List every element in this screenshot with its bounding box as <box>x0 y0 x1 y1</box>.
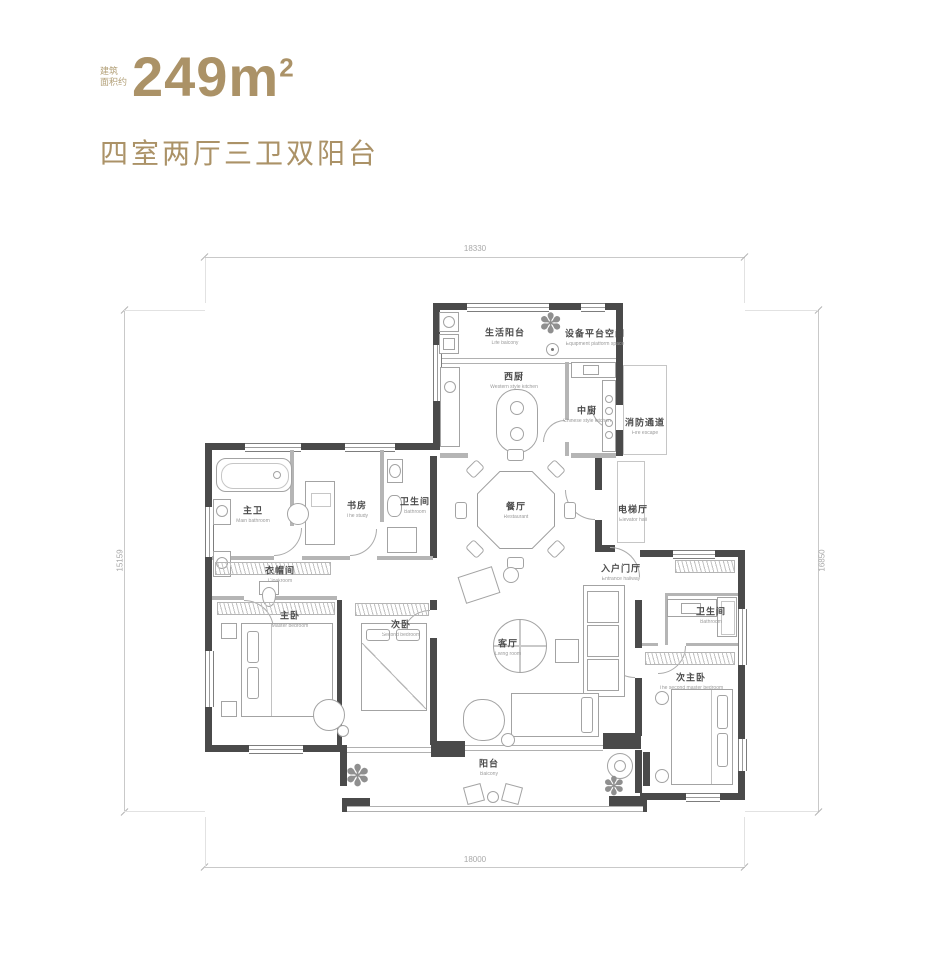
dining-chair <box>564 502 576 519</box>
window <box>205 651 214 707</box>
wall-segment <box>430 638 437 745</box>
room-name-cn: 客厅 <box>498 639 518 649</box>
pillow <box>247 631 259 663</box>
room-label-cloakroom: 衣帽间Cloakroom <box>263 561 297 586</box>
armchair <box>458 566 501 604</box>
area-value: 249m2 <box>132 44 295 109</box>
room-label-elevator-hall: 电梯厅Elevator hall <box>614 500 653 525</box>
shower <box>387 527 417 553</box>
bed-cover-line <box>362 643 426 709</box>
page-title: 四室两厅三卫双阳台 <box>100 132 379 172</box>
pillow <box>717 695 728 729</box>
dining-chair <box>465 459 485 479</box>
wall-segment <box>643 752 650 786</box>
dim-ext <box>745 310 818 311</box>
wall-segment <box>205 557 212 651</box>
wall-segment <box>640 793 686 800</box>
sofa-cushion <box>587 659 619 691</box>
wall-segment <box>395 443 440 450</box>
partition <box>571 453 616 458</box>
ottoman <box>337 725 349 737</box>
room-name-en: Balcony <box>480 772 498 777</box>
plant-icon: ✽ <box>345 759 370 794</box>
partition <box>275 596 337 600</box>
glass-door <box>347 747 431 753</box>
area-prefix-line2: 面积约 <box>100 77 127 88</box>
partition <box>665 593 738 596</box>
room-name-cn: 卫生间 <box>400 497 430 507</box>
floorplan: ✽ <box>205 303 745 815</box>
room-name-cn: 次主卧 <box>676 673 706 683</box>
window <box>345 443 395 452</box>
dim-right-value: 16850 <box>818 536 827 586</box>
window <box>673 550 715 559</box>
room-name-en: Cloakroom <box>268 579 292 584</box>
room-name-cn: 设备平台空间 <box>565 329 625 339</box>
sink-bowl <box>389 464 401 478</box>
desk-monitor <box>311 493 331 507</box>
side-table <box>503 567 519 583</box>
area-exponent: 2 <box>279 52 294 82</box>
room-label-master-bedroom: 主卧Master bedroom <box>265 606 316 631</box>
partition <box>686 643 738 646</box>
wall-segment <box>205 450 212 507</box>
dim-ext <box>205 258 206 303</box>
wall-segment <box>595 520 602 545</box>
room-name-cn: 主卫 <box>243 506 263 516</box>
room-name-cn: 衣帽间 <box>265 566 295 576</box>
wall-segment <box>430 600 437 610</box>
floorplan-page: { "header": { "area_label_line1": "建筑", … <box>0 0 940 965</box>
room-label-equipment-platform: 设备平台空间Equipment platform space <box>554 324 635 349</box>
wall-segment <box>616 430 623 456</box>
window <box>738 609 747 665</box>
ottoman <box>501 733 515 747</box>
wall-segment <box>605 303 623 310</box>
pillow <box>581 697 593 733</box>
wall-segment <box>720 793 745 800</box>
balcony-table <box>487 791 499 803</box>
room-name-cn: 阳台 <box>479 759 499 769</box>
area-number: 249m <box>132 45 279 108</box>
dim-line-top <box>205 257 745 258</box>
desk <box>305 481 335 545</box>
door-arc <box>274 528 302 556</box>
balcony-chair <box>501 783 523 805</box>
partition <box>212 596 244 600</box>
wardrobe <box>645 652 735 665</box>
partition <box>440 453 468 458</box>
window <box>738 739 747 771</box>
room-name-en: The second master bedroom <box>659 686 723 691</box>
island-hob <box>510 427 524 441</box>
balcony-railing <box>347 806 643 812</box>
room-name-en: Western style kitchen <box>490 385 538 390</box>
sink <box>444 381 456 393</box>
room-name-en: Entrance hallway <box>602 577 640 582</box>
room-label-second-master: 次主卧The second master bedroom <box>646 668 736 693</box>
pillow <box>717 733 728 767</box>
room-name-en: Life balcony <box>491 341 520 346</box>
dining-chair <box>546 539 566 559</box>
nightstand <box>221 623 237 639</box>
wall-segment <box>303 745 347 752</box>
sofa-cushion <box>587 591 619 623</box>
nightstand <box>655 691 669 705</box>
wall-segment <box>738 557 745 609</box>
stove-burner <box>605 431 613 439</box>
balcony-chair <box>463 783 485 805</box>
room-name-en: Bathroom <box>700 620 722 625</box>
sink <box>583 365 599 375</box>
room-label-living: 客厅Living room <box>490 634 526 659</box>
wall-segment <box>430 456 437 510</box>
room-label-bathroom-mid: 卫生间Bathroom <box>400 492 430 517</box>
dining-chair <box>465 539 485 559</box>
room-name-en: Main bathroom <box>236 519 270 524</box>
window <box>249 745 303 754</box>
nightstand <box>655 769 669 783</box>
bed-cover-line <box>711 690 712 784</box>
bathtub-drain <box>273 471 281 479</box>
wall-segment <box>635 678 642 736</box>
room-label-master-bath: 主卫Main bathroom <box>230 501 277 526</box>
door-arc <box>350 529 377 556</box>
window <box>467 303 549 312</box>
pillow <box>247 667 259 699</box>
glass-door <box>465 745 603 751</box>
dim-left-value: 15159 <box>116 536 125 586</box>
room-name-en: Fire escape <box>631 431 660 436</box>
dim-line-bottom <box>205 867 745 868</box>
fire-corridor-outline <box>623 365 667 455</box>
sofa-cushion <box>587 625 619 657</box>
washer-drum <box>443 316 455 328</box>
room-name-cn: 主卧 <box>280 611 300 621</box>
room-label-entrance: 入户门厅Entrance hallway <box>594 559 647 584</box>
dim-bottom-value: 18000 <box>205 855 745 864</box>
partition <box>642 643 658 646</box>
partition <box>377 556 433 560</box>
area-prefix-line1: 建筑 <box>100 66 127 77</box>
room-label-life-balcony: 生活阳台Life balcony <box>485 323 525 348</box>
dim-ext <box>744 258 745 303</box>
room-label-study: 书房The study <box>342 496 373 521</box>
dining-chair <box>507 449 524 461</box>
wall-segment <box>205 443 245 450</box>
wall-segment <box>205 745 249 752</box>
room-name-en: Bathroom <box>404 510 426 515</box>
room-label-second-bedroom: 次卧Second bedroom <box>374 615 427 640</box>
area-prefix: 建筑 面积约 <box>100 66 127 88</box>
kitchen-island <box>496 389 538 453</box>
room-name-en: Elevator hall <box>619 518 647 523</box>
room-label-west-kitchen: 西厨Western style kitchen <box>481 367 547 392</box>
room-label-dining: 餐厅Restaurant <box>499 497 533 522</box>
partition <box>380 450 384 522</box>
dim-ext <box>745 811 818 812</box>
wall-segment <box>430 510 437 558</box>
wall-segment <box>715 550 745 557</box>
wall-segment <box>301 443 345 450</box>
dim-ext <box>124 310 205 311</box>
nightstand <box>221 701 237 717</box>
sink-bowl <box>216 505 228 517</box>
room-name-cn: 餐厅 <box>506 502 526 512</box>
room-name-en: Master bedroom <box>272 624 309 629</box>
wall-segment <box>433 303 467 310</box>
room-name-cn: 消防通道 <box>625 418 665 428</box>
wall-segment <box>738 665 745 739</box>
dryer-door <box>443 338 455 350</box>
room-name-en: The study <box>346 514 368 519</box>
wall-segment <box>595 456 602 490</box>
room-name-cn: 卫生间 <box>696 607 726 617</box>
island-sink <box>510 401 524 415</box>
room-name-en: Living room <box>495 652 521 657</box>
room-label-fire-passage: 消防通道Fire escape <box>625 413 665 438</box>
wall-segment <box>635 750 642 793</box>
room-name-en: Restaurant <box>504 515 529 520</box>
dining-chair <box>455 502 467 519</box>
shoe-cabinet <box>675 560 735 573</box>
side-table <box>555 639 579 663</box>
room-name-cn: 电梯厅 <box>618 505 648 515</box>
partition <box>302 556 350 560</box>
room-name-cn: 入户门厅 <box>601 564 641 574</box>
kitchen-counter <box>440 367 460 447</box>
room-label-bathroom-right: 卫生间Bathroom <box>696 602 726 627</box>
wall-segment <box>635 600 642 648</box>
desk-chair <box>287 503 309 525</box>
room-name-cn: 生活阳台 <box>485 328 525 338</box>
room-name-cn: 中厨 <box>577 406 597 416</box>
dim-top-value: 18330 <box>205 244 745 253</box>
room-name-en: Second bedroom <box>382 633 420 638</box>
bed-cover-line <box>271 624 272 716</box>
room-label-balcony: 阳台Balcony <box>477 754 502 779</box>
partition <box>565 442 569 456</box>
room-label-chinese-kitchen: 中厨Chinese style kitchen <box>554 401 620 426</box>
dim-ext <box>124 811 205 812</box>
room-name-en: Equipment platform space <box>566 342 625 347</box>
wall-segment <box>640 550 673 557</box>
room-name-en: Chinese style kitchen <box>563 419 611 424</box>
window <box>686 793 720 802</box>
room-name-cn: 书房 <box>347 501 367 511</box>
plant-icon: ✽ <box>603 771 625 802</box>
room-name-cn: 次卧 <box>391 620 411 630</box>
dining-chair <box>546 459 566 479</box>
room-name-cn: 西厨 <box>504 372 524 382</box>
window <box>581 303 605 312</box>
beanbag <box>463 699 505 741</box>
